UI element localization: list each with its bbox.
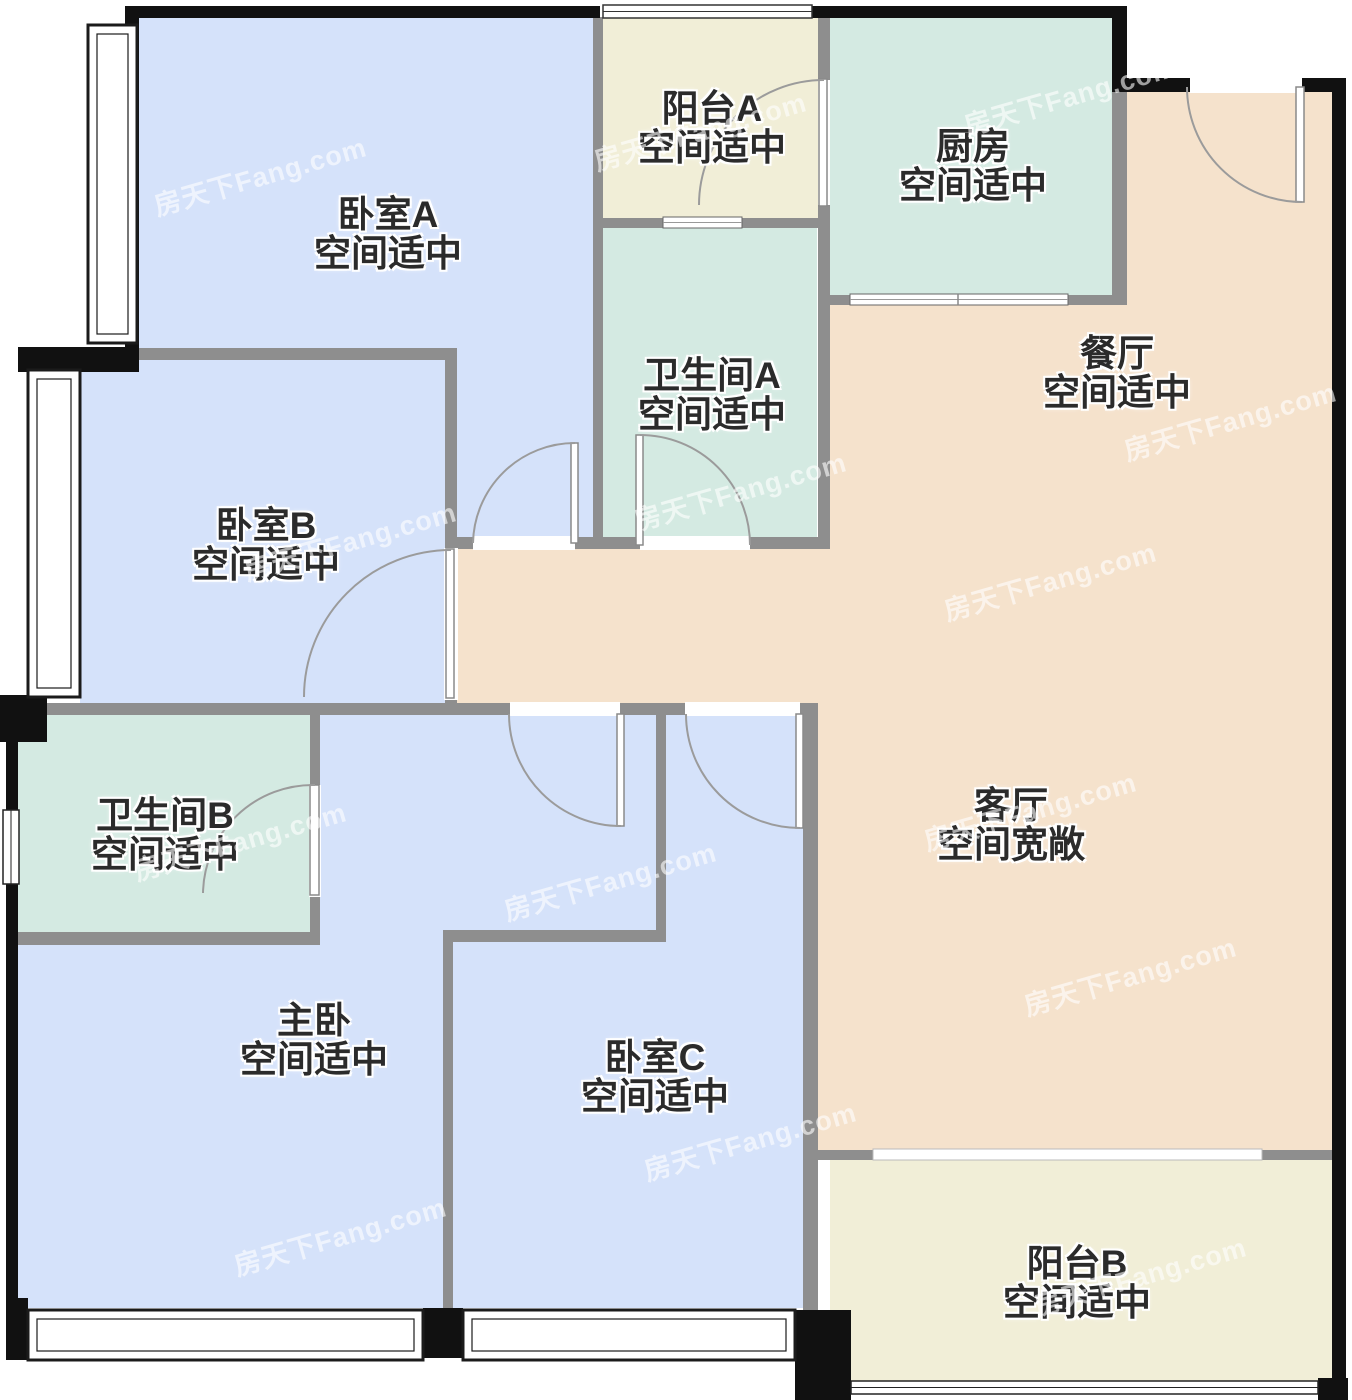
room-label-dining: 餐厅 空间适中 xyxy=(1043,334,1191,412)
door-leaf-bathroom-b xyxy=(310,785,319,895)
floorplan-canvas: 卧室A 空间适中 阳台A 空间适中 厨房 空间适中 卫生间A 空间适中 餐厅 空… xyxy=(0,0,1352,1400)
room-note: 空间适中 xyxy=(638,128,786,167)
room-name: 卧室B xyxy=(192,506,340,545)
room-name: 厨房 xyxy=(899,127,1047,166)
room-note: 空间适中 xyxy=(240,1040,388,1079)
room-note: 空间适中 xyxy=(314,234,462,273)
room-note: 空间适中 xyxy=(1003,1283,1151,1322)
railing-balcony-b xyxy=(851,1381,1318,1394)
door-leaf-bedroom-a xyxy=(571,443,578,543)
window-left-wall xyxy=(3,810,19,884)
room-name: 主卧 xyxy=(240,1001,388,1040)
room-label-bedroom-b: 卧室B 空间适中 xyxy=(192,506,340,584)
room-name: 阳台B xyxy=(1003,1244,1151,1283)
sliding-opening-balcony-b xyxy=(873,1149,1262,1160)
railing-balcony-a xyxy=(603,5,812,18)
room-name: 卧室C xyxy=(581,1038,729,1077)
room-label-bedroom-a: 卧室A 空间适中 xyxy=(314,195,462,273)
room-label-master: 主卧 空间适中 xyxy=(240,1001,388,1079)
window-balcony-a-bath-a xyxy=(663,217,742,228)
room-name: 客厅 xyxy=(937,786,1085,825)
room-note: 空间适中 xyxy=(1043,373,1191,412)
room-name: 卫生间A xyxy=(638,356,786,395)
bay-window-bedroom-a xyxy=(88,25,137,343)
room-note: 空间适中 xyxy=(91,835,239,874)
room-name: 阳台A xyxy=(638,89,786,128)
room-name: 卧室A xyxy=(314,195,462,234)
floorplan-drawing xyxy=(0,0,1352,1400)
room-note: 空间适中 xyxy=(638,395,786,434)
door-leaf-master xyxy=(617,714,624,826)
room-label-living: 客厅 空间宽敞 xyxy=(937,786,1085,864)
room-note: 空间适中 xyxy=(899,166,1047,205)
room-label-balcony-b: 阳台B 空间适中 xyxy=(1003,1244,1151,1322)
room-label-bedroom-c: 卧室C 空间适中 xyxy=(581,1038,729,1116)
room-label-kitchen: 厨房 空间适中 xyxy=(899,127,1047,205)
room-note: 空间适中 xyxy=(581,1077,729,1116)
bay-window-master xyxy=(28,1310,423,1360)
bay-window-bedroom-b xyxy=(28,370,80,697)
door-leaf-balcony-a xyxy=(819,79,827,206)
room-label-bathroom-b: 卫生间B 空间适中 xyxy=(91,796,239,874)
window-kitchen xyxy=(850,294,1068,305)
room-label-balcony-a: 阳台A 空间适中 xyxy=(638,89,786,167)
door-leaf-bedroom-b xyxy=(446,549,454,698)
room-note: 空间宽敞 xyxy=(937,825,1085,864)
door-leaf-bathroom-a xyxy=(636,435,643,545)
room-note: 空间适中 xyxy=(192,545,340,584)
room-label-bathroom-a: 卫生间A 空间适中 xyxy=(638,356,786,434)
door-leaf-entrance xyxy=(1296,87,1304,202)
room-name: 餐厅 xyxy=(1043,334,1191,373)
bay-window-bedroom-c xyxy=(463,1310,795,1360)
door-leaf-bedroom-c xyxy=(796,714,803,828)
room-name: 卫生间B xyxy=(91,796,239,835)
